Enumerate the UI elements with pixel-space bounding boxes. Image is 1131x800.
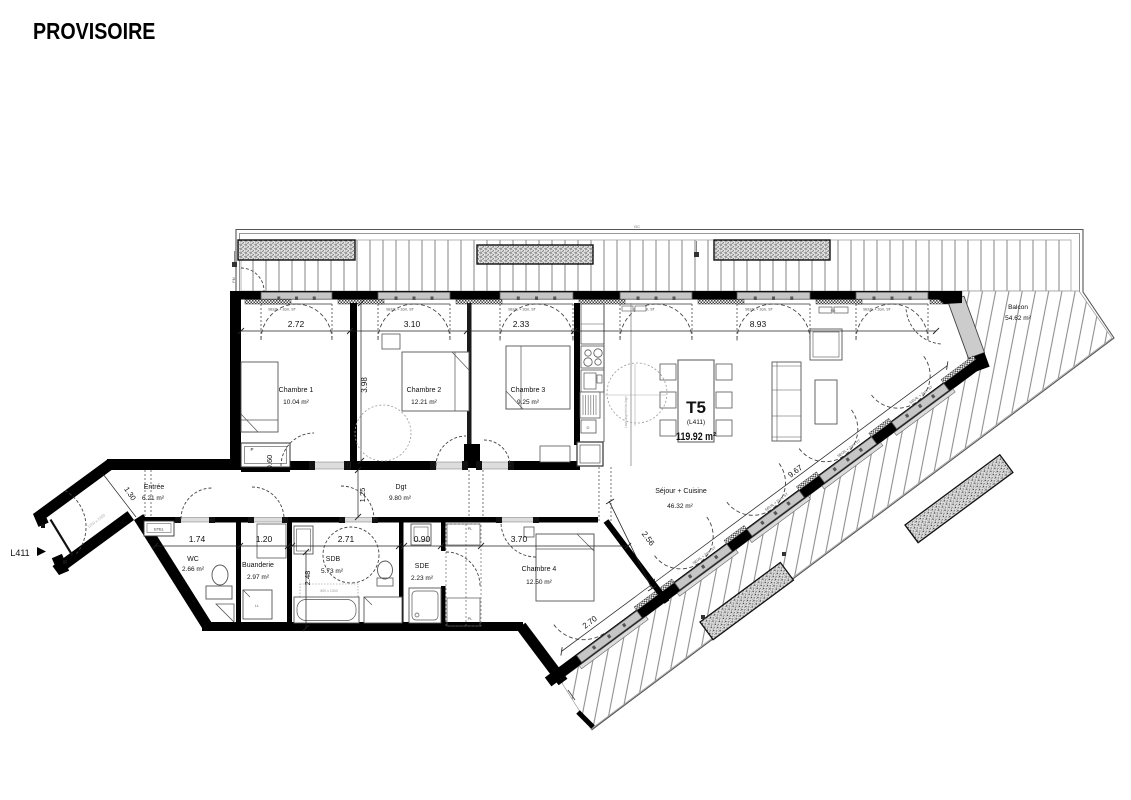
svg-text:5.73 m²: 5.73 m² [321,568,344,575]
svg-text:2.23 m²: 2.23 m² [411,575,434,582]
svg-text:3.10: 3.10 [404,319,421,329]
svg-text:SEUIL + 2cm, ST: SEUIL + 2cm, ST [745,308,774,312]
svg-text:2.56: 2.56 [640,530,657,548]
svg-text:2.72: 2.72 [288,319,305,329]
svg-text:10.04 m²: 10.04 m² [283,399,309,406]
svg-text:(L411): (L411) [687,419,705,426]
svg-text:2.66 m²: 2.66 m² [182,566,205,573]
svg-text:12.21 m²: 12.21 m² [411,399,437,406]
svg-text:SDE: SDE [415,563,430,570]
svg-text:9.67: 9.67 [786,463,804,480]
svg-text:46.32 m²: 46.32 m² [667,503,693,510]
svg-text:ETEL: ETEL [154,528,164,532]
svg-text:RO: RO [831,309,836,313]
svg-text:Chambre 2: Chambre 2 [407,387,442,394]
svg-text:6.21 m²: 6.21 m² [142,495,165,502]
svg-text:D: D [587,425,590,430]
svg-text:0.90: 0.90 [414,534,431,544]
svg-text:SEUIL + 2cm, ST: SEUIL + 2cm, ST [268,308,297,312]
svg-text:1.25: 1.25 [358,488,367,503]
svg-text:3.70: 3.70 [511,534,528,544]
svg-text:1.74: 1.74 [189,534,206,544]
svg-text:1.20: 1.20 [256,534,273,544]
svg-text:2.33: 2.33 [513,319,530,329]
svg-text:SEUIL + 2cm, ST: SEUIL + 2cm, ST [863,308,892,312]
svg-text:2.48: 2.48 [303,571,312,586]
svg-text:Chambre 4: Chambre 4 [522,566,557,573]
svg-text:12.50 m²: 12.50 m² [526,579,552,586]
svg-text:54.62 m²: 54.62 m² [1005,315,1031,322]
svg-text:T5: T5 [686,398,706,417]
svg-text:WC: WC [187,556,199,563]
svg-text:Chambre 3: Chambre 3 [511,387,546,394]
svg-text:Dgt: Dgt [396,484,407,491]
svg-text:Séjour + Cuisine: Séjour + Cuisine [655,488,707,495]
svg-text:PL: PL [468,617,473,621]
svg-text:P: P [250,447,253,452]
svg-text:Lave-linge/sèche-linge: Lave-linge/sèche-linge [624,396,628,428]
svg-text:1.30: 1.30 [122,485,138,502]
svg-text:SEUIL + 2cm, ST: SEUIL + 2cm, ST [508,308,537,312]
svg-text:2.70: 2.70 [581,614,599,631]
svg-text:Entrée: Entrée [144,484,165,491]
svg-text:119.92 m²: 119.92 m² [676,431,716,443]
svg-text:2.97 m²: 2.97 m² [247,574,270,581]
svg-text:0.60: 0.60 [265,455,274,470]
svg-text:1250 x 2200: 1250 x 2200 [87,513,106,529]
svg-text:L411: L411 [10,548,29,558]
svg-text:PL: PL [468,527,473,531]
svg-text:LL: LL [255,604,259,608]
svg-text:Balcon: Balcon [1008,304,1028,311]
svg-text:SDB: SDB [326,556,341,563]
svg-text:GC: GC [634,224,640,229]
svg-text:2.71: 2.71 [338,534,355,544]
svg-text:SEUIL + 2cm, ST: SEUIL + 2cm, ST [386,308,415,312]
svg-text:PM: PM [232,277,236,282]
svg-text:Buanderie: Buanderie [242,562,274,569]
svg-text:Chambre 1: Chambre 1 [279,387,314,394]
svg-text:9.25 m²: 9.25 m² [517,399,540,406]
svg-text:9.80 m²: 9.80 m² [389,495,412,502]
svg-text:3.98: 3.98 [360,377,369,393]
svg-text:8.93: 8.93 [750,319,767,329]
svg-text:800 x 1300: 800 x 1300 [320,589,337,593]
